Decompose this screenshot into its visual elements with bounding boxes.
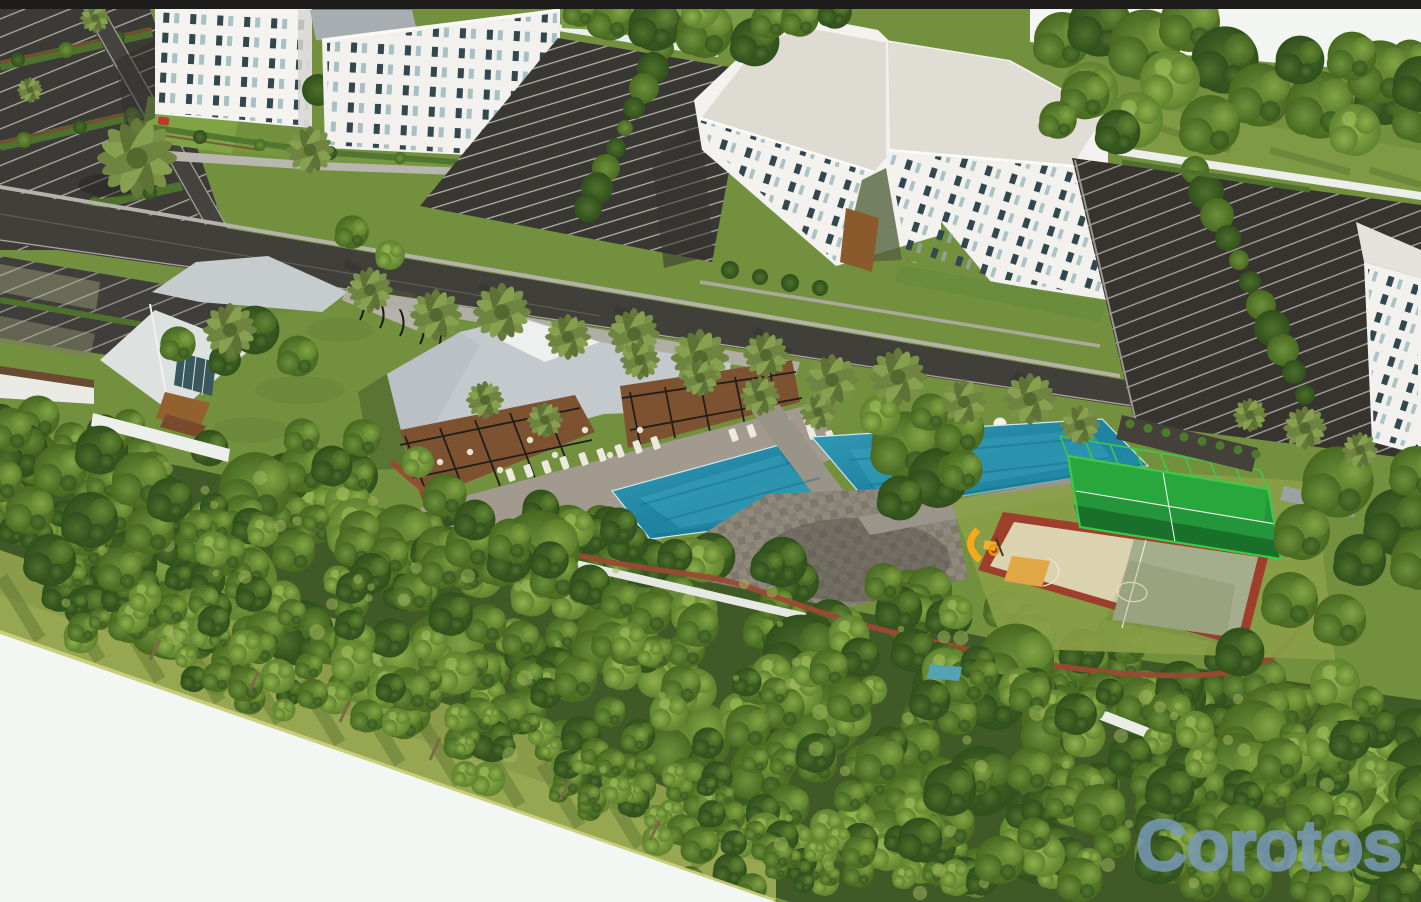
svg-text:Corotos: Corotos [1136,807,1401,886]
